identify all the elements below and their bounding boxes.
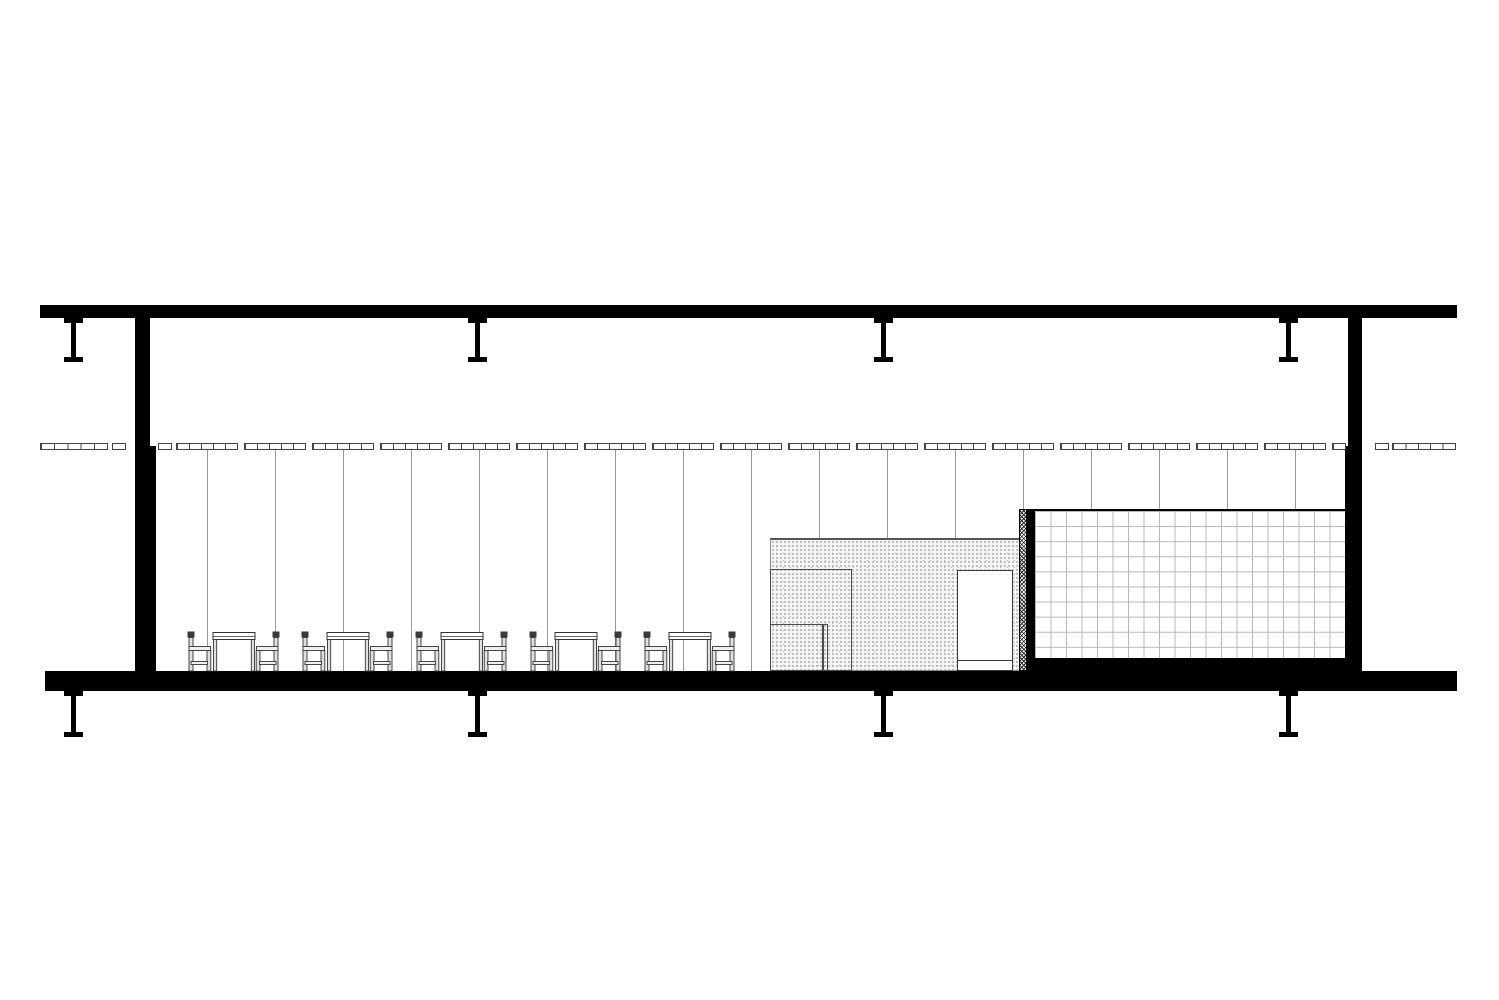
floor-beam-ibeam-web — [881, 696, 886, 732]
curtain-mullion-line — [751, 450, 752, 671]
steel-column-left-lower — [135, 446, 156, 671]
ceiling-panel-group — [112, 443, 126, 450]
ceiling-panel-group — [1196, 443, 1258, 450]
ceiling-panel-group — [720, 443, 782, 450]
core-inner-partition-b — [770, 624, 828, 671]
curtain-mullion-line — [1295, 450, 1296, 509]
ceiling-panel-group — [312, 443, 374, 450]
roof-hanger-ibeam-flange — [468, 357, 487, 362]
curtain-mullion-line — [1159, 450, 1160, 509]
floor-beam-ibeam-web — [475, 696, 480, 732]
floor-beam-ibeam-flange — [64, 732, 83, 737]
furniture-group — [529, 630, 622, 671]
roof-slab — [40, 305, 1457, 318]
ceiling-panel-group — [788, 443, 850, 450]
insulated-partition-hatch — [1019, 509, 1027, 671]
floor-beam-ibeam-flange — [468, 732, 487, 737]
ceiling-panel-group — [1375, 443, 1389, 450]
roof-hanger-ibeam-web — [1286, 318, 1291, 357]
floor-slab — [45, 671, 1457, 691]
door-threshold-line — [958, 660, 1012, 661]
furniture-group — [187, 630, 280, 671]
ceiling-panel-group — [1060, 443, 1122, 450]
furniture-group — [415, 630, 508, 671]
roof-hanger-ibeam-web — [881, 318, 886, 357]
ceiling-panel-group — [244, 443, 306, 450]
ceiling-panel-group — [1392, 443, 1456, 450]
tiled-wall-base — [1035, 658, 1345, 671]
ceiling-panel-strip — [156, 443, 1346, 450]
curtain-mullion-line — [819, 450, 820, 538]
ceiling-panel-group — [856, 443, 918, 450]
roof-hanger-ibeam-flange — [1279, 357, 1298, 362]
ceiling-panel-group — [1332, 443, 1346, 450]
furniture-group — [301, 630, 394, 671]
floor-beam-ibeam-web — [71, 696, 76, 732]
roof-hanger-ibeam-flange — [874, 357, 893, 362]
roof-hanger-ibeam-web — [71, 318, 76, 357]
ceiling-panel-group — [652, 443, 714, 450]
ceiling-panel-group — [924, 443, 986, 450]
ceiling-panel-group — [380, 443, 442, 450]
steel-column-right-lower — [1345, 446, 1362, 671]
curtain-mullion-line — [887, 450, 888, 538]
section-drawing-canvas — [0, 0, 1499, 1000]
steel-column-left-upper — [135, 318, 150, 446]
curtain-mullion-line — [1091, 450, 1092, 509]
partition-solid-wall — [1027, 509, 1035, 671]
curtain-mullion-line — [955, 450, 956, 538]
floor-beam-ibeam-flange — [874, 732, 893, 737]
ceiling-panel-group — [40, 443, 108, 450]
roof-hanger-ibeam-web — [475, 318, 480, 357]
furniture-group — [643, 630, 736, 671]
ceiling-panel-group — [584, 443, 646, 450]
steel-column-right-upper — [1348, 318, 1362, 446]
curtain-mullion-line — [1227, 450, 1228, 509]
ceiling-panel-group — [176, 443, 238, 450]
ceiling-panel-group — [992, 443, 1054, 450]
ceiling-panel-group — [448, 443, 510, 450]
curtain-mullion-line — [411, 450, 412, 671]
floor-beam-ibeam-flange — [1279, 732, 1298, 737]
tiled-wall-volume — [1035, 509, 1345, 660]
ceiling-panel-group — [1128, 443, 1190, 450]
ceiling-panel-group — [516, 443, 578, 450]
core-partition-double-line — [822, 624, 824, 671]
ceiling-panel-group — [1264, 443, 1326, 450]
curtain-mullion-line — [1023, 450, 1024, 509]
roof-hanger-ibeam-flange — [64, 357, 83, 362]
floor-beam-ibeam-web — [1286, 696, 1291, 732]
core-door-opening — [957, 570, 1013, 671]
ceiling-panel-single — [158, 443, 172, 450]
